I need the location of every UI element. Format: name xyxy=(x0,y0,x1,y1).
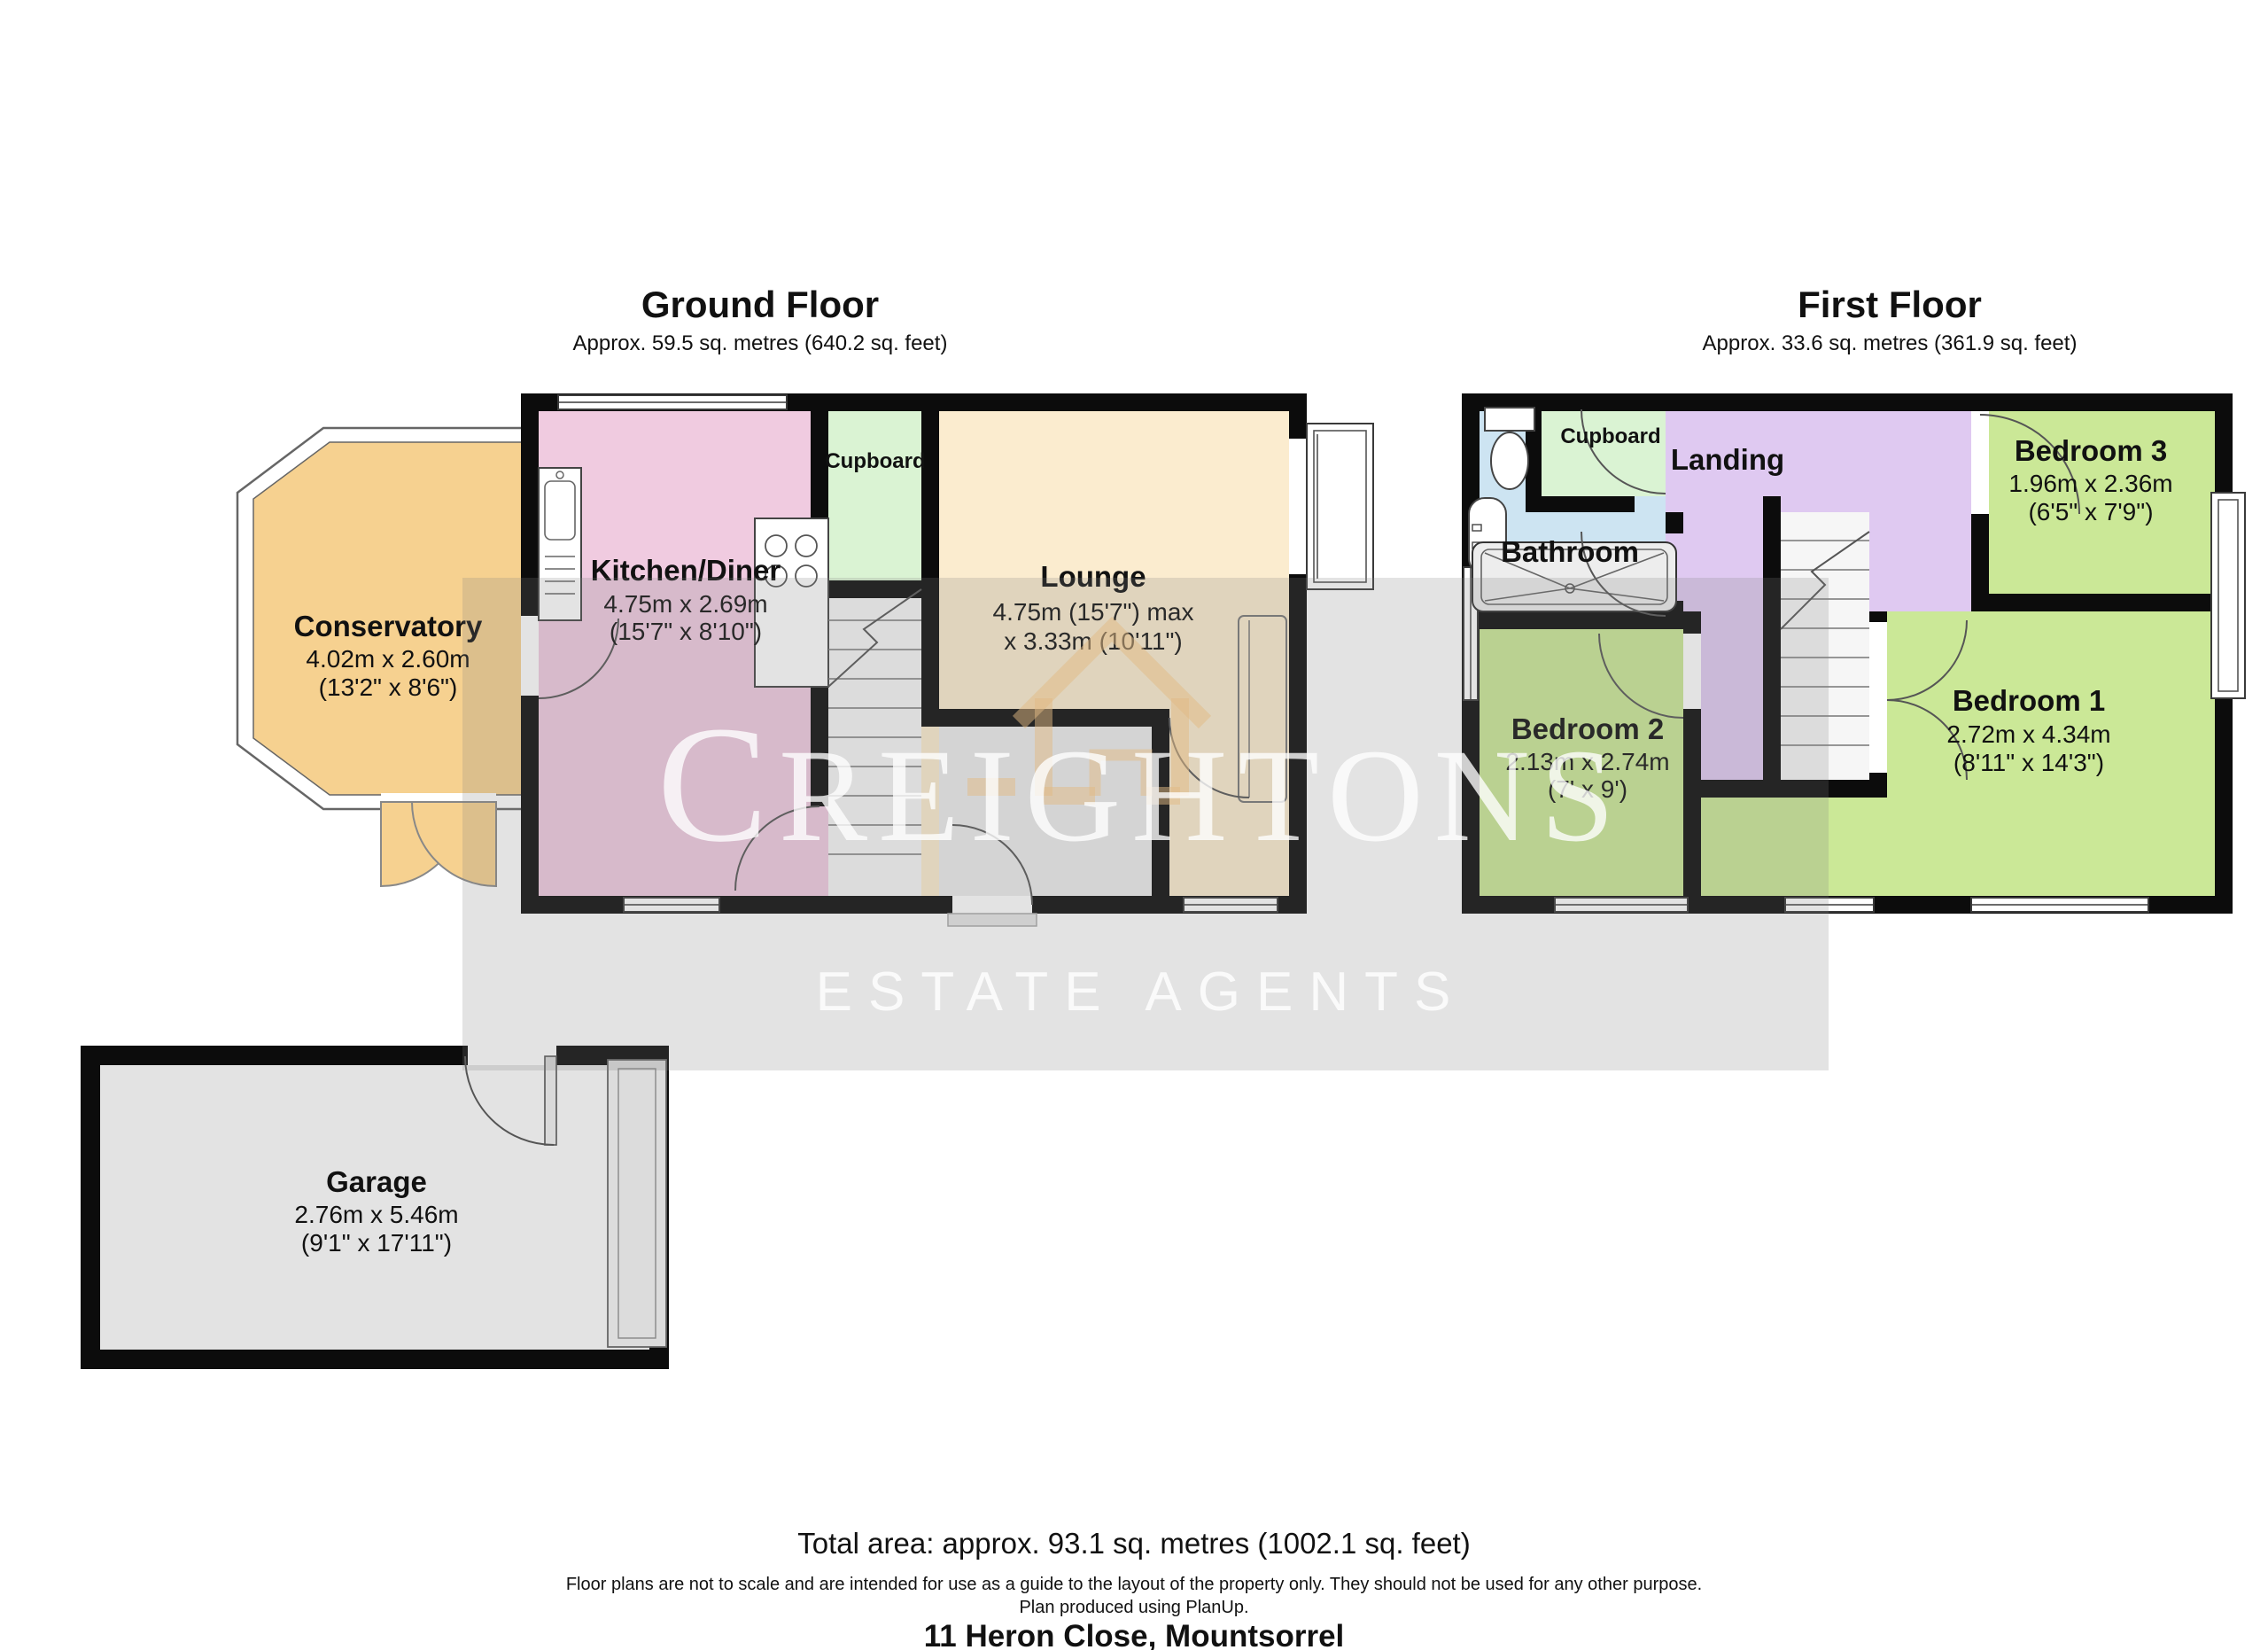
window-bedroom3-right xyxy=(2211,493,2245,698)
ground-floor-title: Ground Floor xyxy=(641,284,879,325)
wall xyxy=(1971,393,1989,409)
floorplan-canvas: Conservatory 4.02m x 2.60m (13'2" x 8'6"… xyxy=(0,0,2268,1650)
floor-titles: Ground Floor Approx. 59.5 sq. metres (64… xyxy=(573,284,2078,355)
bedroom1-dims-imperial: (8'11" x 14'3") xyxy=(1953,749,2104,776)
total-area-text: Total area: approx. 93.1 sq. metres (100… xyxy=(797,1527,1470,1560)
watermark: CREIGHTONS ESTATE AGENTS xyxy=(462,578,1829,1070)
landing-label: Landing xyxy=(1671,443,1784,476)
footer: Total area: approx. 93.1 sq. metres (100… xyxy=(566,1527,1702,1650)
room-cupboard-ground xyxy=(828,411,921,580)
bedroom1-dims-metric: 2.72m x 4.34m xyxy=(1946,720,2110,748)
bathroom-label: Bathroom xyxy=(1501,535,1639,568)
produced-text: Plan produced using PlanUp. xyxy=(1019,1598,1248,1617)
conservatory-dims-imperial: (13'2" x 8'6") xyxy=(319,673,458,701)
conservatory-label: Conservatory xyxy=(294,610,483,642)
bedroom3-dims-imperial: (6'5" x 7'9") xyxy=(2028,498,2153,525)
bedroom3-dims-metric: 1.96m x 2.36m xyxy=(2008,470,2172,497)
wall xyxy=(81,1350,669,1369)
garage-dims-metric: 2.76m x 5.46m xyxy=(294,1201,458,1228)
first-floor-title: First Floor xyxy=(1798,284,1982,325)
garage-dims-imperial: (9'1" x 17'11") xyxy=(301,1229,452,1257)
ground-floor-area: Approx. 59.5 sq. metres (640.2 sq. feet) xyxy=(573,331,948,355)
address-text: 11 Heron Close, Mountsorrel xyxy=(924,1619,1345,1650)
cupboard-first-label: Cupboard xyxy=(1560,424,1660,448)
first-floor-area: Approx. 33.6 sq. metres (361.9 sq. feet) xyxy=(1703,331,2078,355)
disclaimer-text: Floor plans are not to scale and are int… xyxy=(566,1575,1702,1594)
bay-window-lounge xyxy=(1307,424,1373,589)
wall xyxy=(1666,512,1683,533)
bedroom3-label: Bedroom 3 xyxy=(2015,434,2167,467)
bay-gap xyxy=(1289,439,1307,574)
floorplan-page: Conservatory 4.02m x 2.60m (13'2" x 8'6"… xyxy=(0,0,2268,1650)
wall xyxy=(81,1046,100,1369)
garage-updoor xyxy=(608,1060,666,1347)
wall xyxy=(1971,514,1989,594)
window-kitchen-top xyxy=(558,395,787,409)
cupboard-ground-label: Cupboard xyxy=(825,449,925,473)
window-bedroom1-bottom xyxy=(1971,898,2148,912)
wall xyxy=(1869,611,1887,622)
bedroom1-label: Bedroom 1 xyxy=(1953,684,2105,717)
wall xyxy=(1971,594,2215,611)
wall xyxy=(1526,496,1635,512)
watermark-tagline: ESTATE AGENTS xyxy=(816,961,1467,1023)
garage-label: Garage xyxy=(326,1165,427,1198)
wall xyxy=(1462,393,2233,411)
conservatory-dims-metric: 4.02m x 2.60m xyxy=(306,645,470,673)
